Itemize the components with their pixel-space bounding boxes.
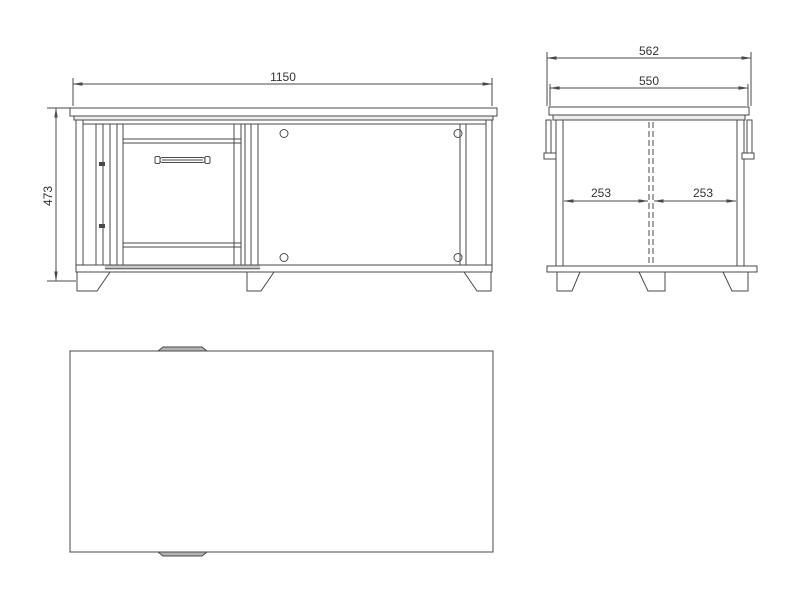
side-overall-depth-label: 562	[639, 44, 659, 58]
side-half-left-label: 253	[591, 186, 611, 200]
foot	[77, 272, 110, 291]
front-width-label: 1150	[270, 70, 296, 84]
front-height-label: 473	[41, 186, 55, 206]
front-top-panel	[70, 108, 497, 116]
side-top-depth-label: 550	[639, 74, 659, 88]
foot	[464, 272, 491, 291]
hinge-mark	[99, 162, 105, 166]
side-bottom-rail	[547, 266, 757, 272]
front-width-dimension: 1150	[73, 70, 492, 106]
drawer-handle	[155, 157, 210, 164]
side-top-edge-band	[553, 115, 745, 120]
side-feet	[557, 272, 748, 291]
drawing-canvas: 1150 473	[0, 0, 800, 600]
front-trim-strip	[546, 120, 551, 153]
top-view-outline	[70, 351, 493, 552]
front-top-edge-band	[74, 116, 493, 120]
back-trim-strip	[747, 120, 752, 153]
handle-tab-back	[158, 552, 207, 556]
foot	[639, 272, 665, 291]
front-height-dimension: 473	[41, 108, 76, 281]
front-feet	[77, 272, 491, 291]
back-trim-block	[742, 153, 754, 159]
side-top-panel	[549, 107, 749, 115]
side-half-right-label: 253	[693, 186, 713, 200]
top-view	[70, 347, 493, 556]
foot	[557, 272, 580, 291]
hinge-mark	[99, 224, 105, 228]
front-view: 1150 473	[41, 70, 497, 291]
handle-end-cap	[205, 157, 210, 164]
side-view: 562 550 253 253	[544, 44, 757, 291]
foot	[247, 272, 274, 291]
handle-end-cap	[155, 157, 160, 164]
side-body	[556, 120, 744, 266]
handle-tab-front	[158, 347, 207, 351]
front-trim-block	[544, 153, 556, 159]
side-top-depth-dimension: 550	[550, 74, 748, 106]
foot	[723, 272, 748, 291]
technical-drawing: 1150 473	[0, 0, 800, 600]
